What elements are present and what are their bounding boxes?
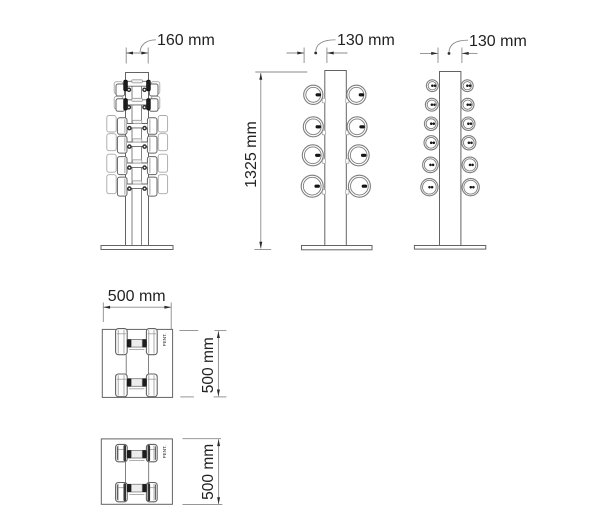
svg-text:500 mm: 500 mm xyxy=(200,444,217,500)
svg-text:130 mm: 130 mm xyxy=(469,33,527,50)
svg-text:500 mm: 500 mm xyxy=(200,337,217,393)
svg-text:160 mm: 160 mm xyxy=(157,32,215,49)
svg-text:130 mm: 130 mm xyxy=(337,32,395,49)
svg-text:PENT.: PENT. xyxy=(162,445,167,458)
svg-text:PENT.: PENT. xyxy=(162,333,167,346)
svg-text:1325 mm: 1325 mm xyxy=(243,121,260,188)
svg-text:500 mm: 500 mm xyxy=(108,288,166,305)
